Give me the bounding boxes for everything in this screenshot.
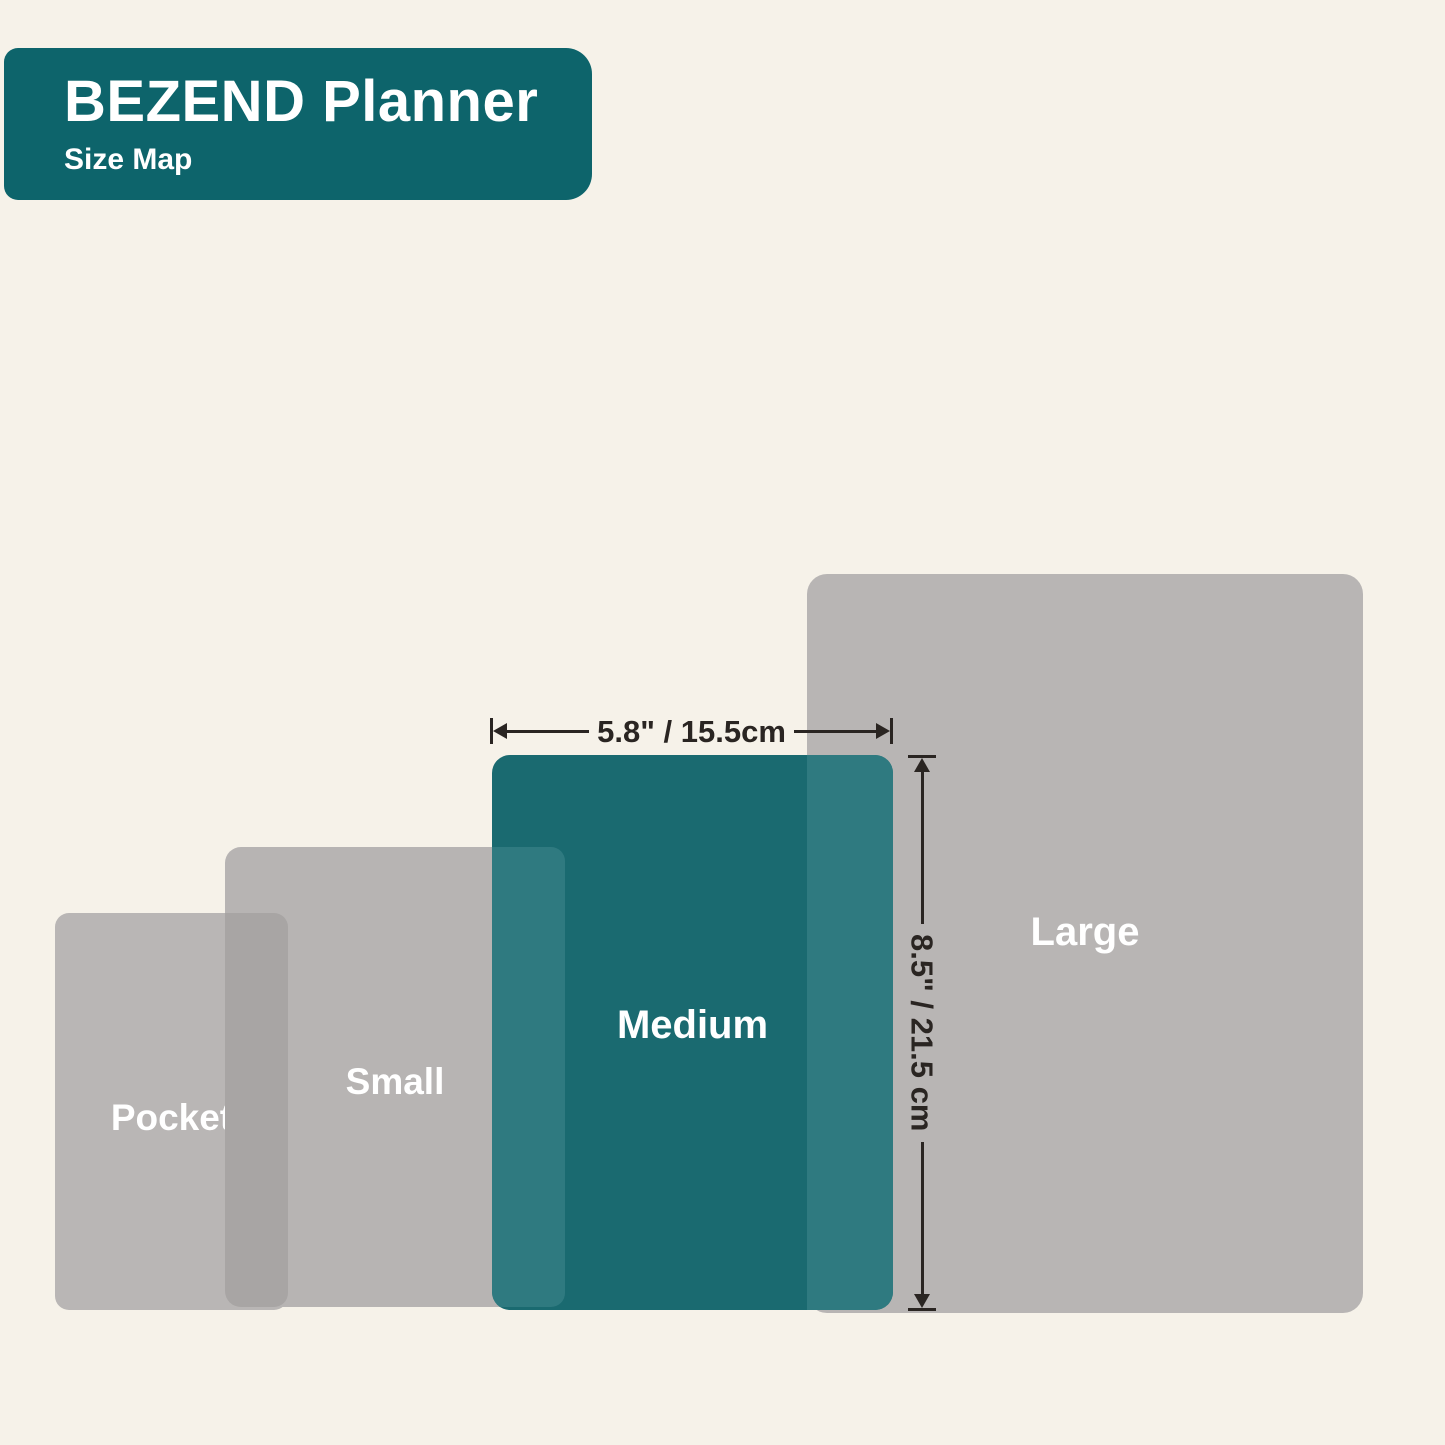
width-dimension-label: 5.8" / 15.5cm [589,716,794,747]
small-medium-overlap-region [492,847,565,1307]
arrowhead-right-icon [876,723,890,739]
arrowhead-up-icon [914,758,930,772]
medium-size-label: Medium [492,1003,893,1048]
dim-line-top [921,772,924,924]
dim-line-bottom [921,1142,924,1294]
dim-line-right [794,730,876,733]
page-subtitle: Size Map [64,143,592,177]
brand-title: BEZEND Planner [64,72,592,133]
dim-tick-right [890,718,893,744]
dim-line-left [507,730,589,733]
medium-size-rect: Medium [492,755,893,1310]
pocket-small-overlap-region [225,913,288,1307]
arrowhead-left-icon [493,723,507,739]
dim-tick-bottom [908,1308,936,1311]
height-dimension-annotation: 8.5" / 21.5 cm [906,755,938,1311]
size-map-page: BEZEND Planner Size Map Large Pocket Sma… [0,0,1445,1445]
header-badge: BEZEND Planner Size Map [4,48,592,200]
arrowhead-down-icon [914,1294,930,1308]
width-dimension-annotation: 5.8" / 15.5cm [490,715,893,747]
height-dimension-label: 8.5" / 21.5 cm [907,924,938,1141]
